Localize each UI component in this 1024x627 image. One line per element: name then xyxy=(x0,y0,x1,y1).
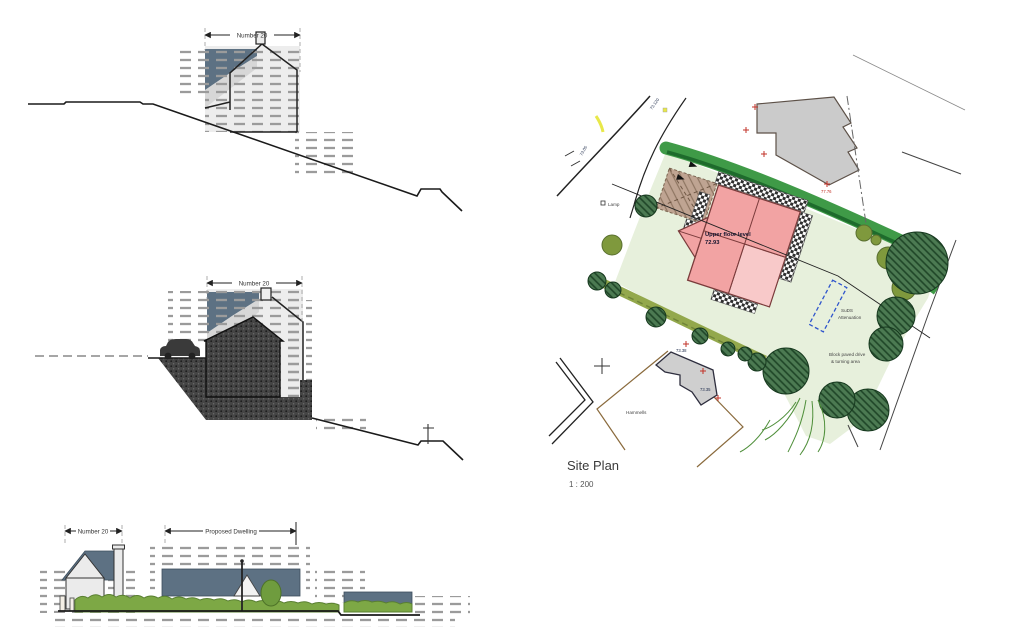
neighbor-building-north xyxy=(757,97,859,185)
road-level-1: 73.120 xyxy=(649,97,661,111)
suds-label-2: Attenuation xyxy=(838,315,862,320)
ground-hatch-wedge xyxy=(158,358,206,420)
drawing-canvas: Number 20 xyxy=(0,0,1024,627)
dim-label-number-20-elevation: Number 20 xyxy=(78,529,109,536)
site-plan-title: Site Plan xyxy=(567,458,619,473)
neighbor-building-south xyxy=(656,352,717,405)
section-lower-number-20: Number 20 xyxy=(35,276,463,460)
survey-level-2: 73.35 xyxy=(700,387,711,392)
dim-label-number-20-upper: Number 20 xyxy=(237,33,268,40)
suds-label-1: SuDS xyxy=(841,308,853,313)
site-plan: Upper floor level 72.93 SuDS Attenuation… xyxy=(549,55,965,489)
hedge-elevation xyxy=(75,595,339,613)
survey-cross xyxy=(594,358,610,374)
upper-floor-level: 72.93 xyxy=(705,240,720,246)
drawing-sheet: Number 20 xyxy=(0,0,1024,627)
marker-level: 77.76 xyxy=(821,189,832,194)
road-level-2: 73.05 xyxy=(579,144,589,156)
drive-label-1: Block paved drive xyxy=(829,352,866,357)
site-plan-scale: 1 : 200 xyxy=(569,480,594,489)
bush xyxy=(261,580,281,606)
adjacent-building-corner xyxy=(549,358,593,444)
upper-floor-label: Upper floor level xyxy=(705,232,751,238)
lamp-label: Lamp xyxy=(608,202,620,207)
survey-level-1: 73.38 xyxy=(676,348,687,353)
dim-label-number-20-lower: Number 20 xyxy=(239,281,270,288)
dimension-proposed-dwelling: Proposed Dwelling xyxy=(165,522,296,545)
dim-label-proposed-dwelling: Proposed Dwelling xyxy=(205,529,257,536)
dimension-number-20-elevation: Number 20 xyxy=(65,525,122,545)
ground-line-lower xyxy=(312,418,463,460)
parcel-name: Hammells xyxy=(626,410,647,415)
road-highlight xyxy=(596,116,603,132)
drive-label-2: & turning area xyxy=(831,359,860,364)
street-elevation: Number 20 Proposed Dwelling xyxy=(40,522,470,627)
section-upper-number-20: Number 20 xyxy=(28,28,462,211)
